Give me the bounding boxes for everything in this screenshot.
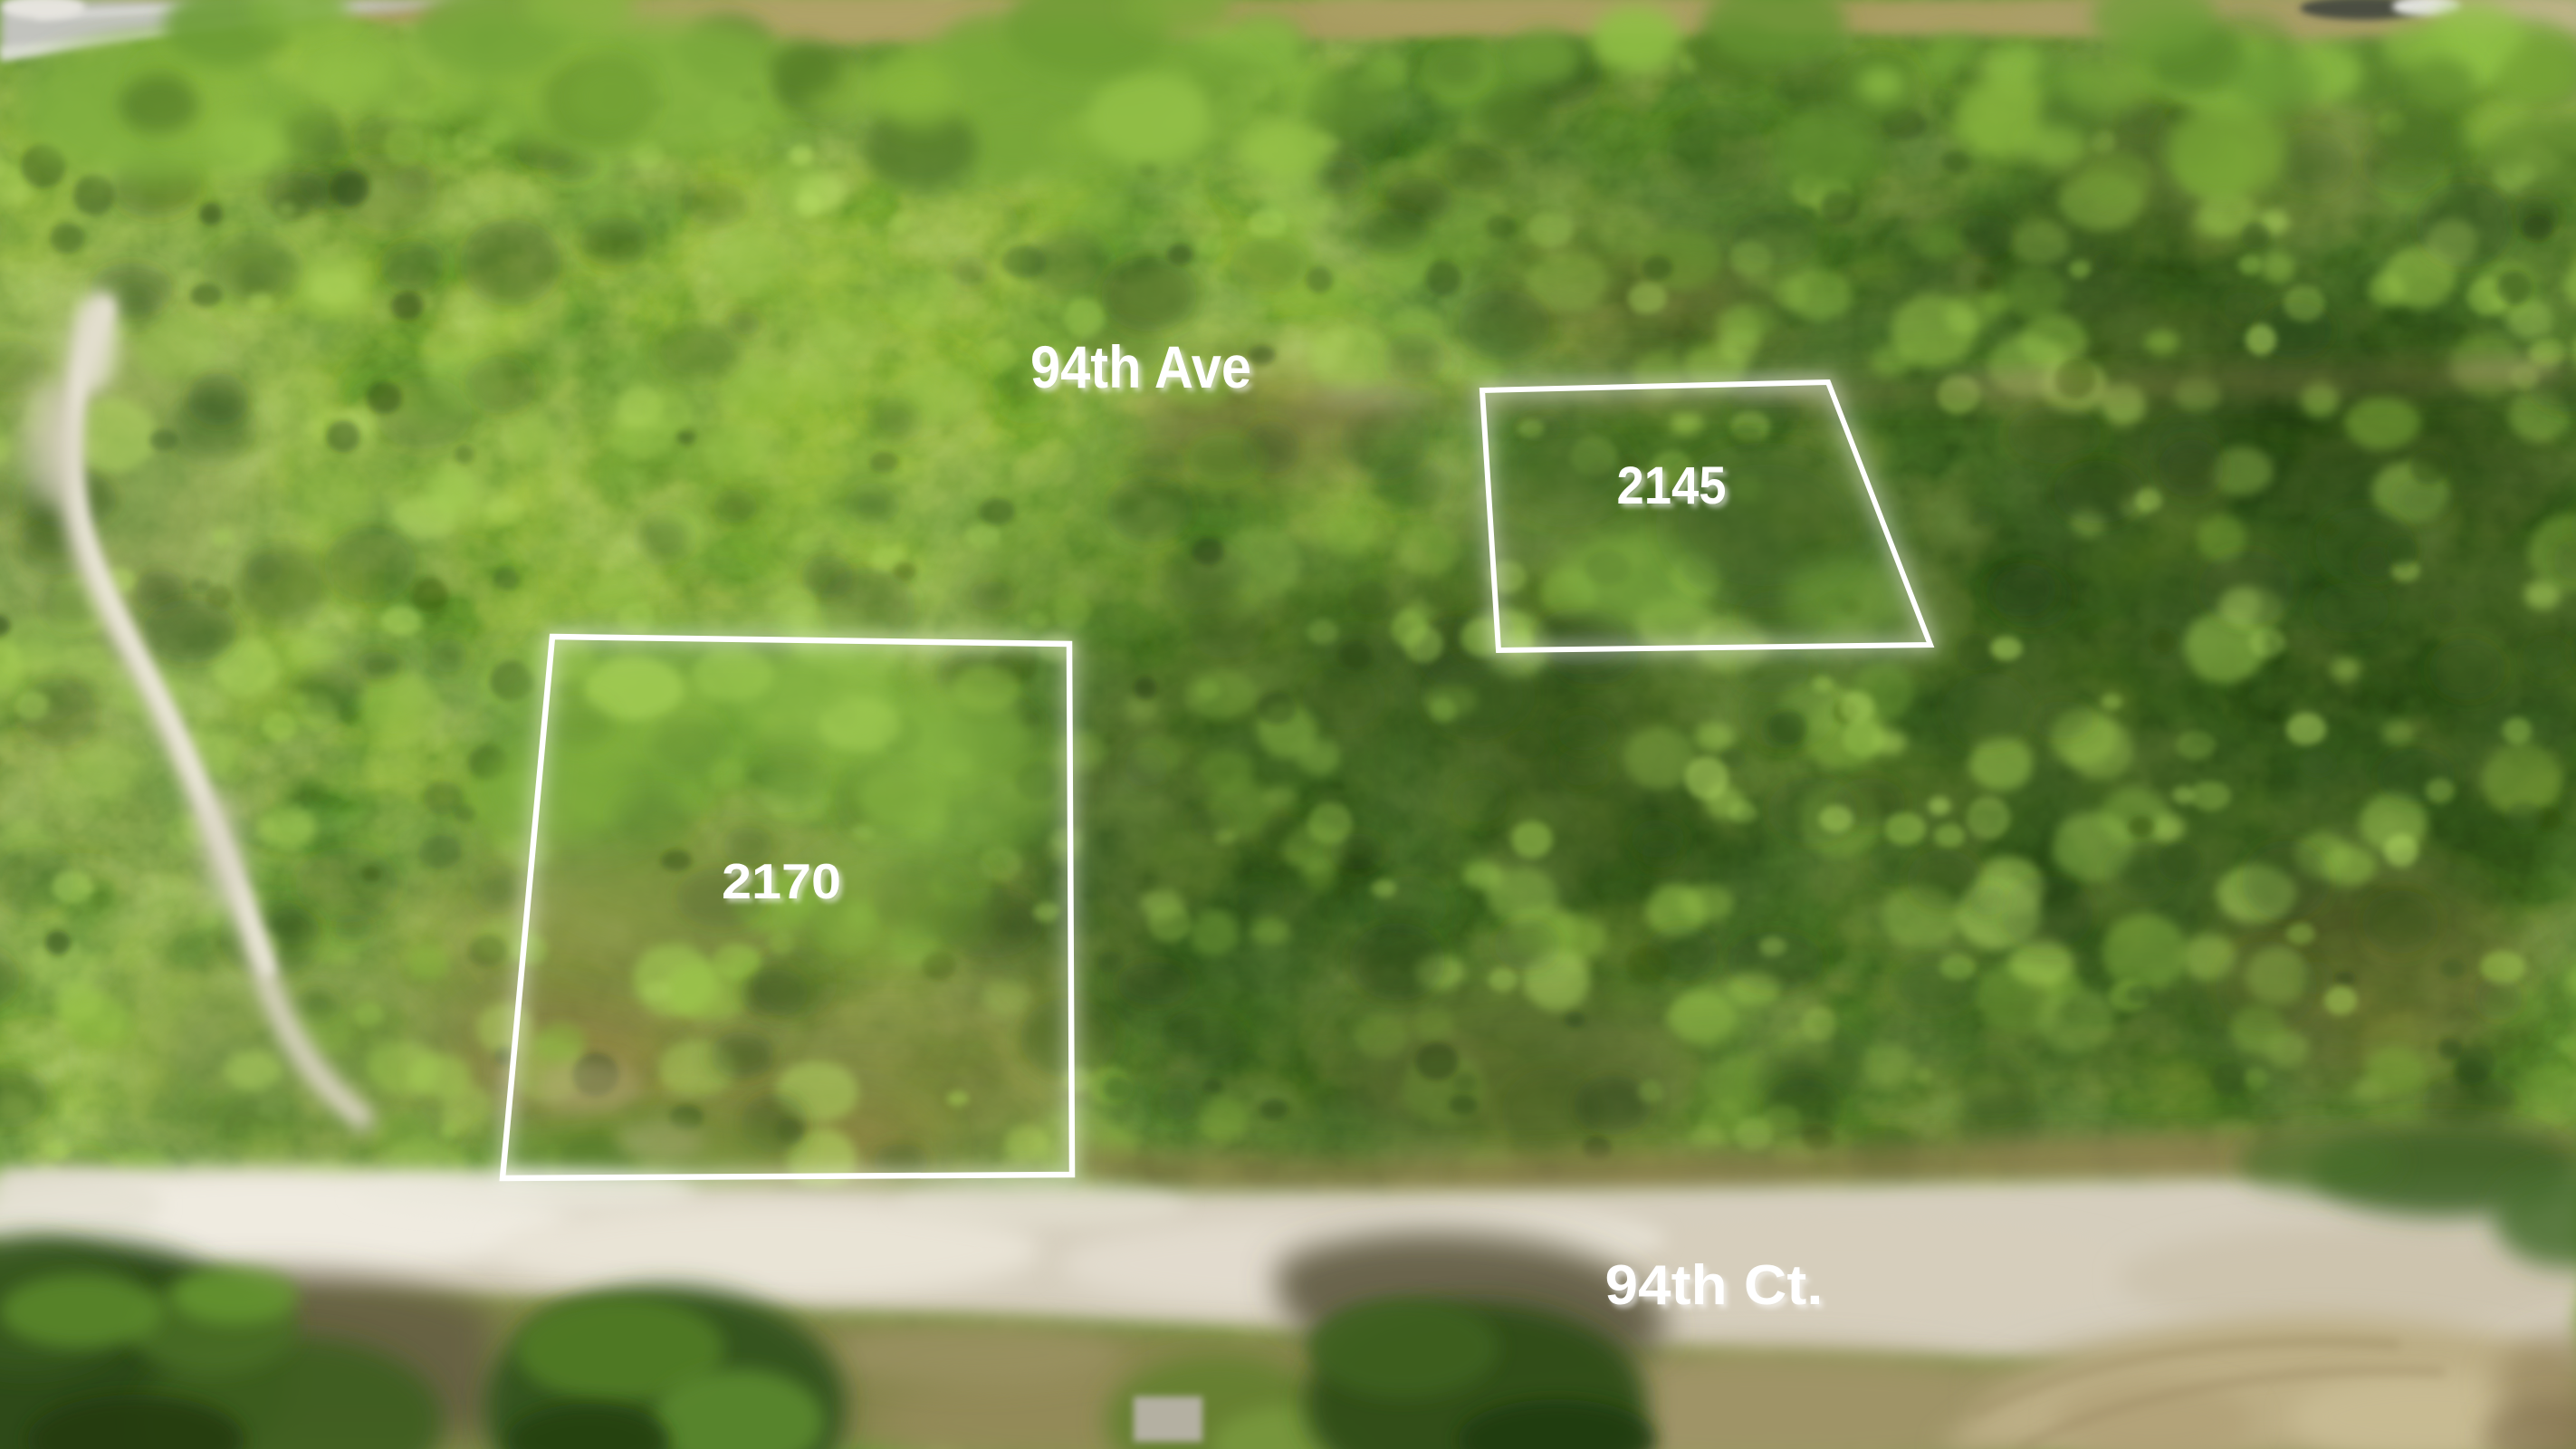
- svg-text:2170: 2170: [722, 853, 841, 909]
- svg-text:94th Ave: 94th Ave: [1030, 333, 1251, 400]
- svg-text:94th Ct.: 94th Ct.: [1605, 1254, 1824, 1317]
- svg-text:2145: 2145: [1617, 456, 1727, 515]
